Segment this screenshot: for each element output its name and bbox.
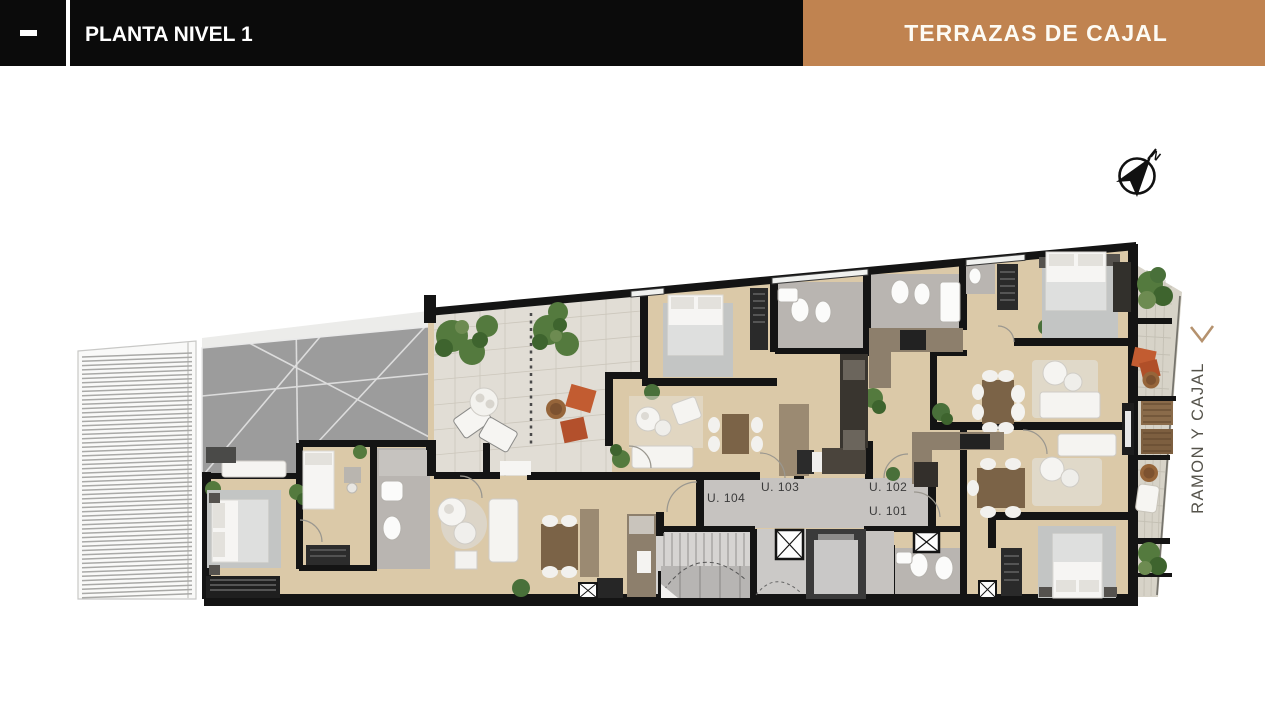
svg-text:PLANTA NIVEL 1: PLANTA NIVEL 1 bbox=[85, 23, 253, 46]
svg-text:TERRAZAS DE CAJAL: TERRAZAS DE CAJAL bbox=[904, 20, 1168, 46]
svg-text:U. 101: U. 101 bbox=[869, 504, 907, 518]
svg-text:U. 103: U. 103 bbox=[761, 480, 799, 494]
svg-text:U. 104: U. 104 bbox=[707, 491, 745, 505]
svg-text:U. 102: U. 102 bbox=[869, 480, 907, 494]
svg-text:RAMON Y CAJAL: RAMON Y CAJAL bbox=[1189, 362, 1207, 514]
